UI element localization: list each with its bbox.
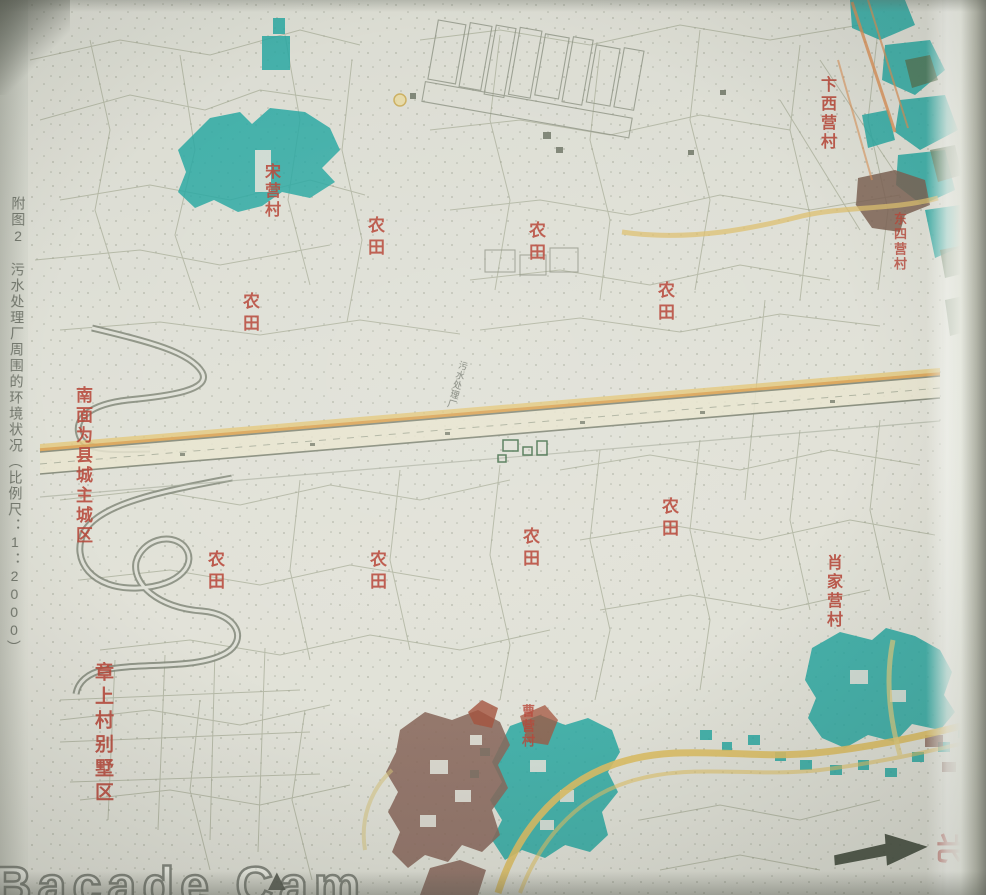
pond — [394, 94, 406, 106]
map-canvas — [0, 0, 986, 895]
north-arrow-icon — [832, 832, 932, 876]
watermark-triangle-icon: ▲ — [262, 864, 292, 895]
photographed-map-page: 农田农田农田农田农田农田农田农田宋营村卞西营村东四营村肖家营村曹营村南面为县城主… — [0, 0, 986, 895]
north-label: 北 — [931, 833, 975, 863]
compass: 北 — [832, 824, 982, 890]
watermark-text: Bacade Cam — [0, 856, 366, 895]
map-paper: 农田农田农田农田农田农田农田农田宋营村卞西营村东四营村肖家营村曹营村南面为县城主… — [0, 0, 986, 895]
